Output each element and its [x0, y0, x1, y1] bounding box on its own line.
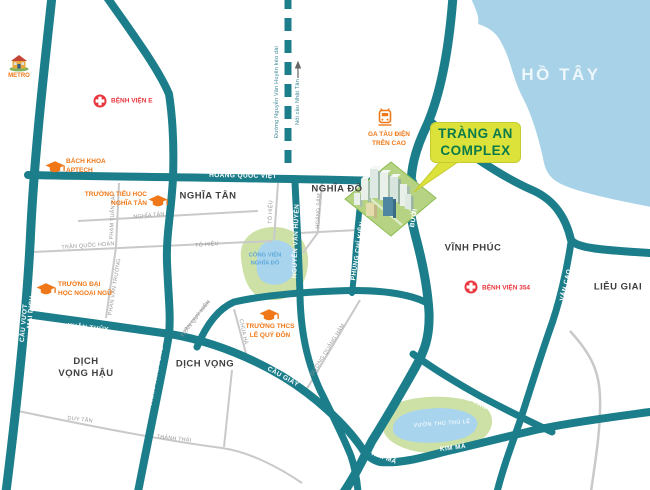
elevated-train-station-icon: [379, 109, 392, 126]
road-southeast-gray: [570, 331, 600, 490]
park-label-line1: CÔNG VIÊN: [249, 252, 282, 260]
hospital-354-cross-icon: [465, 281, 478, 294]
lake-label-ho-tay: HỒ TÂY: [521, 65, 600, 85]
poi-bach-khoa-aptech: BÁCH KHOA APTECH: [66, 158, 106, 176]
poi-tieu-hoc-line1: TRƯỜNG TIỂU HỌC: [85, 191, 147, 200]
area-label-dich-vong-hau-line1: DỊCH: [58, 356, 113, 368]
road-van-cao: [497, 242, 571, 490]
poi-ga-tau-line2: TRÊN CAO: [368, 140, 410, 149]
area-label-dich-vong-hau: DỊCH VỌNG HẬU: [58, 356, 113, 380]
ho-tay-lake: [470, 0, 650, 208]
poi-ga-tau-dien-tren-cao: GA TÀU ĐIỆN TRÊN CAO: [368, 131, 410, 149]
park-label-line2: NGHĨA ĐÔ: [249, 260, 282, 268]
poi-bach-khoa-line2: APTECH: [66, 167, 106, 176]
area-label-dich-vong-hau-line2: VỌNG HẬU: [58, 368, 113, 380]
park-label-cong-vien-nghia-do: CÔNG VIÊN NGHĨA ĐÔ: [249, 252, 282, 267]
direction-arrow-icon: [296, 62, 301, 78]
area-label-dich-vong: DỊCH VỌNG: [176, 359, 234, 370]
road-label-to-hieu-v: TÔ HIỆU: [268, 200, 275, 224]
callout-line2: COMPLEX: [440, 143, 510, 160]
road-nguyen-van-huyen: [295, 182, 358, 490]
tieu-hoc-nghia-tan-cap-icon: [149, 195, 168, 206]
hanoi-location-map: HỒ TÂY NGHĨA TÂN NGHĨA ĐÔ VĨNH PHÚC LIỄU…: [0, 0, 650, 490]
road-duy-tan-thanh-thai: [18, 411, 302, 483]
area-label-nghia-tan: NGHĨA TÂN: [180, 191, 237, 202]
poi-tieu-hoc-line2: NGHĨA TÂN: [85, 200, 147, 209]
dai-hoc-ngoai-ngu-cap-icon: [37, 283, 56, 294]
hospital-e-cross-icon: [94, 95, 107, 108]
poi-dai-hoc-line1: TRƯỜNG ĐẠI: [58, 281, 113, 290]
road-nguyen-khanh-toan: [197, 291, 429, 347]
road-label-noi-cau-nhat-tan: Nối cầu Nhật Tân: [295, 79, 301, 125]
road-dich-vong-branch: [224, 370, 232, 447]
trang-an-complex-callout: TRÀNG AN COMPLEX: [430, 122, 521, 163]
poi-truong-tieu-hoc-nghia-tan: TRƯỜNG TIỂU HỌC NGHĨA TÂN: [85, 191, 147, 209]
thcs-le-quy-don-cap-icon: [260, 309, 279, 320]
poi-truong-thcs-le-quy-don: TRƯỜNG THCS LÊ QUÝ ĐÔN: [246, 323, 295, 341]
metro-store-icon: [10, 55, 29, 71]
poi-ga-tau-line1: GA TÀU ĐIỆN: [368, 131, 410, 140]
poi-thcs-line2: LÊ QUÝ ĐÔN: [246, 332, 295, 341]
area-label-vinh-phuc: VĨNH PHÚC: [445, 243, 502, 254]
road-nghia-do-cross: [299, 230, 358, 233]
poi-benh-vien-e: BỆNH VIỆN E: [111, 98, 153, 105]
poi-benh-vien-354: BỆNH VIỆN 354: [482, 285, 530, 292]
poi-truong-dai-hoc-ngoai-ngu: TRƯỜNG ĐẠI HỌC NGOẠI NGỮ: [58, 281, 113, 299]
poi-metro: METRO: [8, 72, 30, 80]
road-label-hoang-quoc-viet: HOÀNG QUỐC VIỆT: [209, 172, 277, 180]
road-nghia-do-diag: [303, 231, 319, 253]
poi-thcs-line1: TRƯỜNG THCS: [246, 323, 295, 332]
area-label-lieu-giai: LIỄU GIAI: [594, 282, 642, 293]
bach-khoa-aptech-cap-icon: [46, 161, 65, 172]
callout-tail: [414, 158, 461, 192]
callout-line1: TRÀNG AN: [438, 126, 513, 143]
poi-dai-hoc-line2: HỌC NGOẠI NGỮ: [58, 290, 113, 299]
poi-bach-khoa-line1: BÁCH KHOA: [66, 158, 106, 167]
road-label-nvh-extension: Đường Nguyễn Văn Huyên kéo dài: [274, 46, 280, 138]
